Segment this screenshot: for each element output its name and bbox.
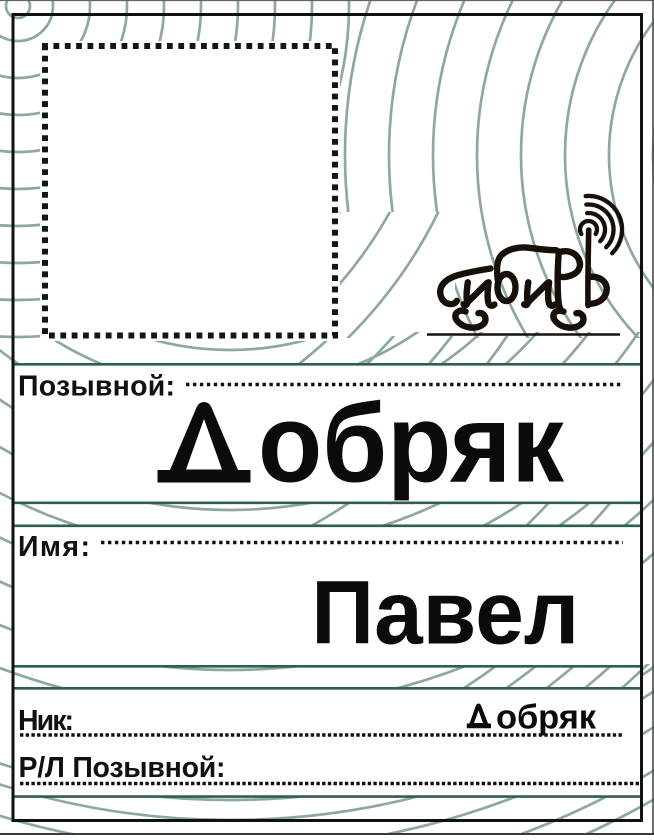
svg-text:Павел: Павел (311, 564, 579, 664)
svg-text:Позывной:: Позывной: (18, 370, 175, 402)
svg-text:обряк: обряк (258, 382, 564, 506)
svg-text:обряк: обряк (496, 699, 597, 737)
svg-text:Р/Л Позывной:: Р/Л Позывной: (19, 752, 226, 784)
svg-text:Ник:: Ник: (18, 705, 74, 737)
